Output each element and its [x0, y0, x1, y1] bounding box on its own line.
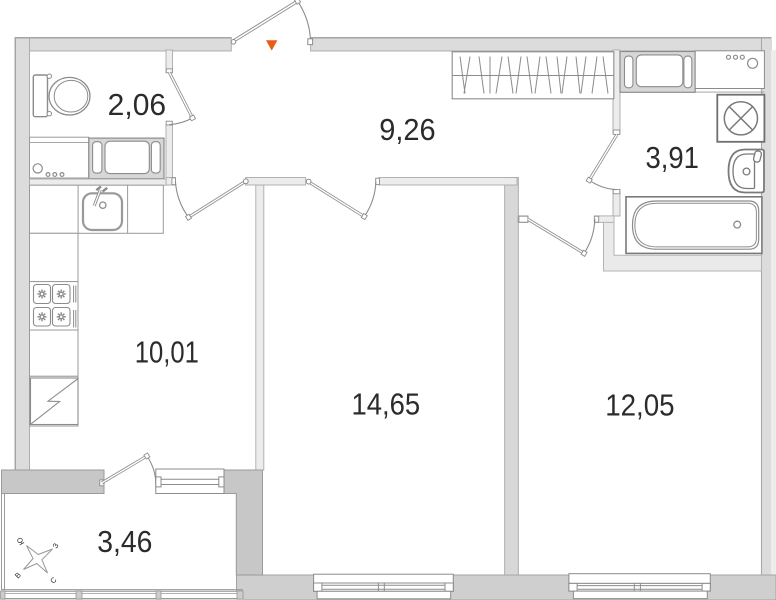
svg-text:10,01: 10,01 — [135, 335, 199, 369]
svg-text:9,26: 9,26 — [379, 113, 435, 147]
svg-text:3,91: 3,91 — [645, 142, 698, 176]
svg-text:14,65: 14,65 — [351, 388, 420, 422]
svg-text:12,05: 12,05 — [605, 389, 674, 422]
svg-text:2,06: 2,06 — [108, 89, 166, 122]
svg-text:3,46: 3,46 — [97, 525, 152, 559]
